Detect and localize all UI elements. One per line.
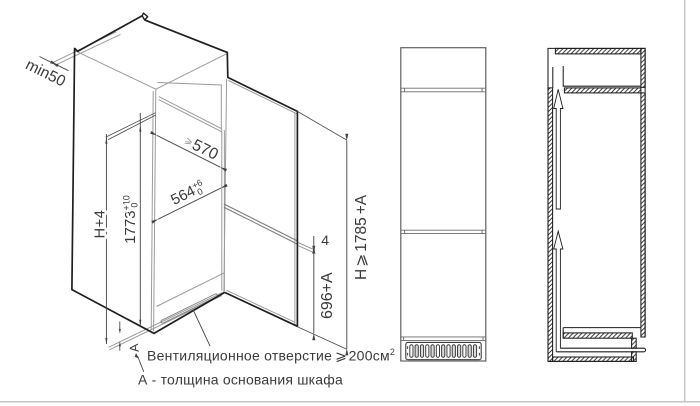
svg-text:H⩾1785+A: H⩾1785+A [353, 194, 370, 280]
svg-text:Вентиляционное отверстие⩾200см: Вентиляционное отверстие⩾200см2 [147, 347, 395, 364]
svg-text:А - толщина основания шкафа: А - толщина основания шкафа [138, 372, 343, 388]
svg-text:4: 4 [321, 232, 329, 248]
svg-text:696+A: 696+A [319, 272, 336, 319]
svg-text:H+4: H+4 [92, 210, 108, 239]
